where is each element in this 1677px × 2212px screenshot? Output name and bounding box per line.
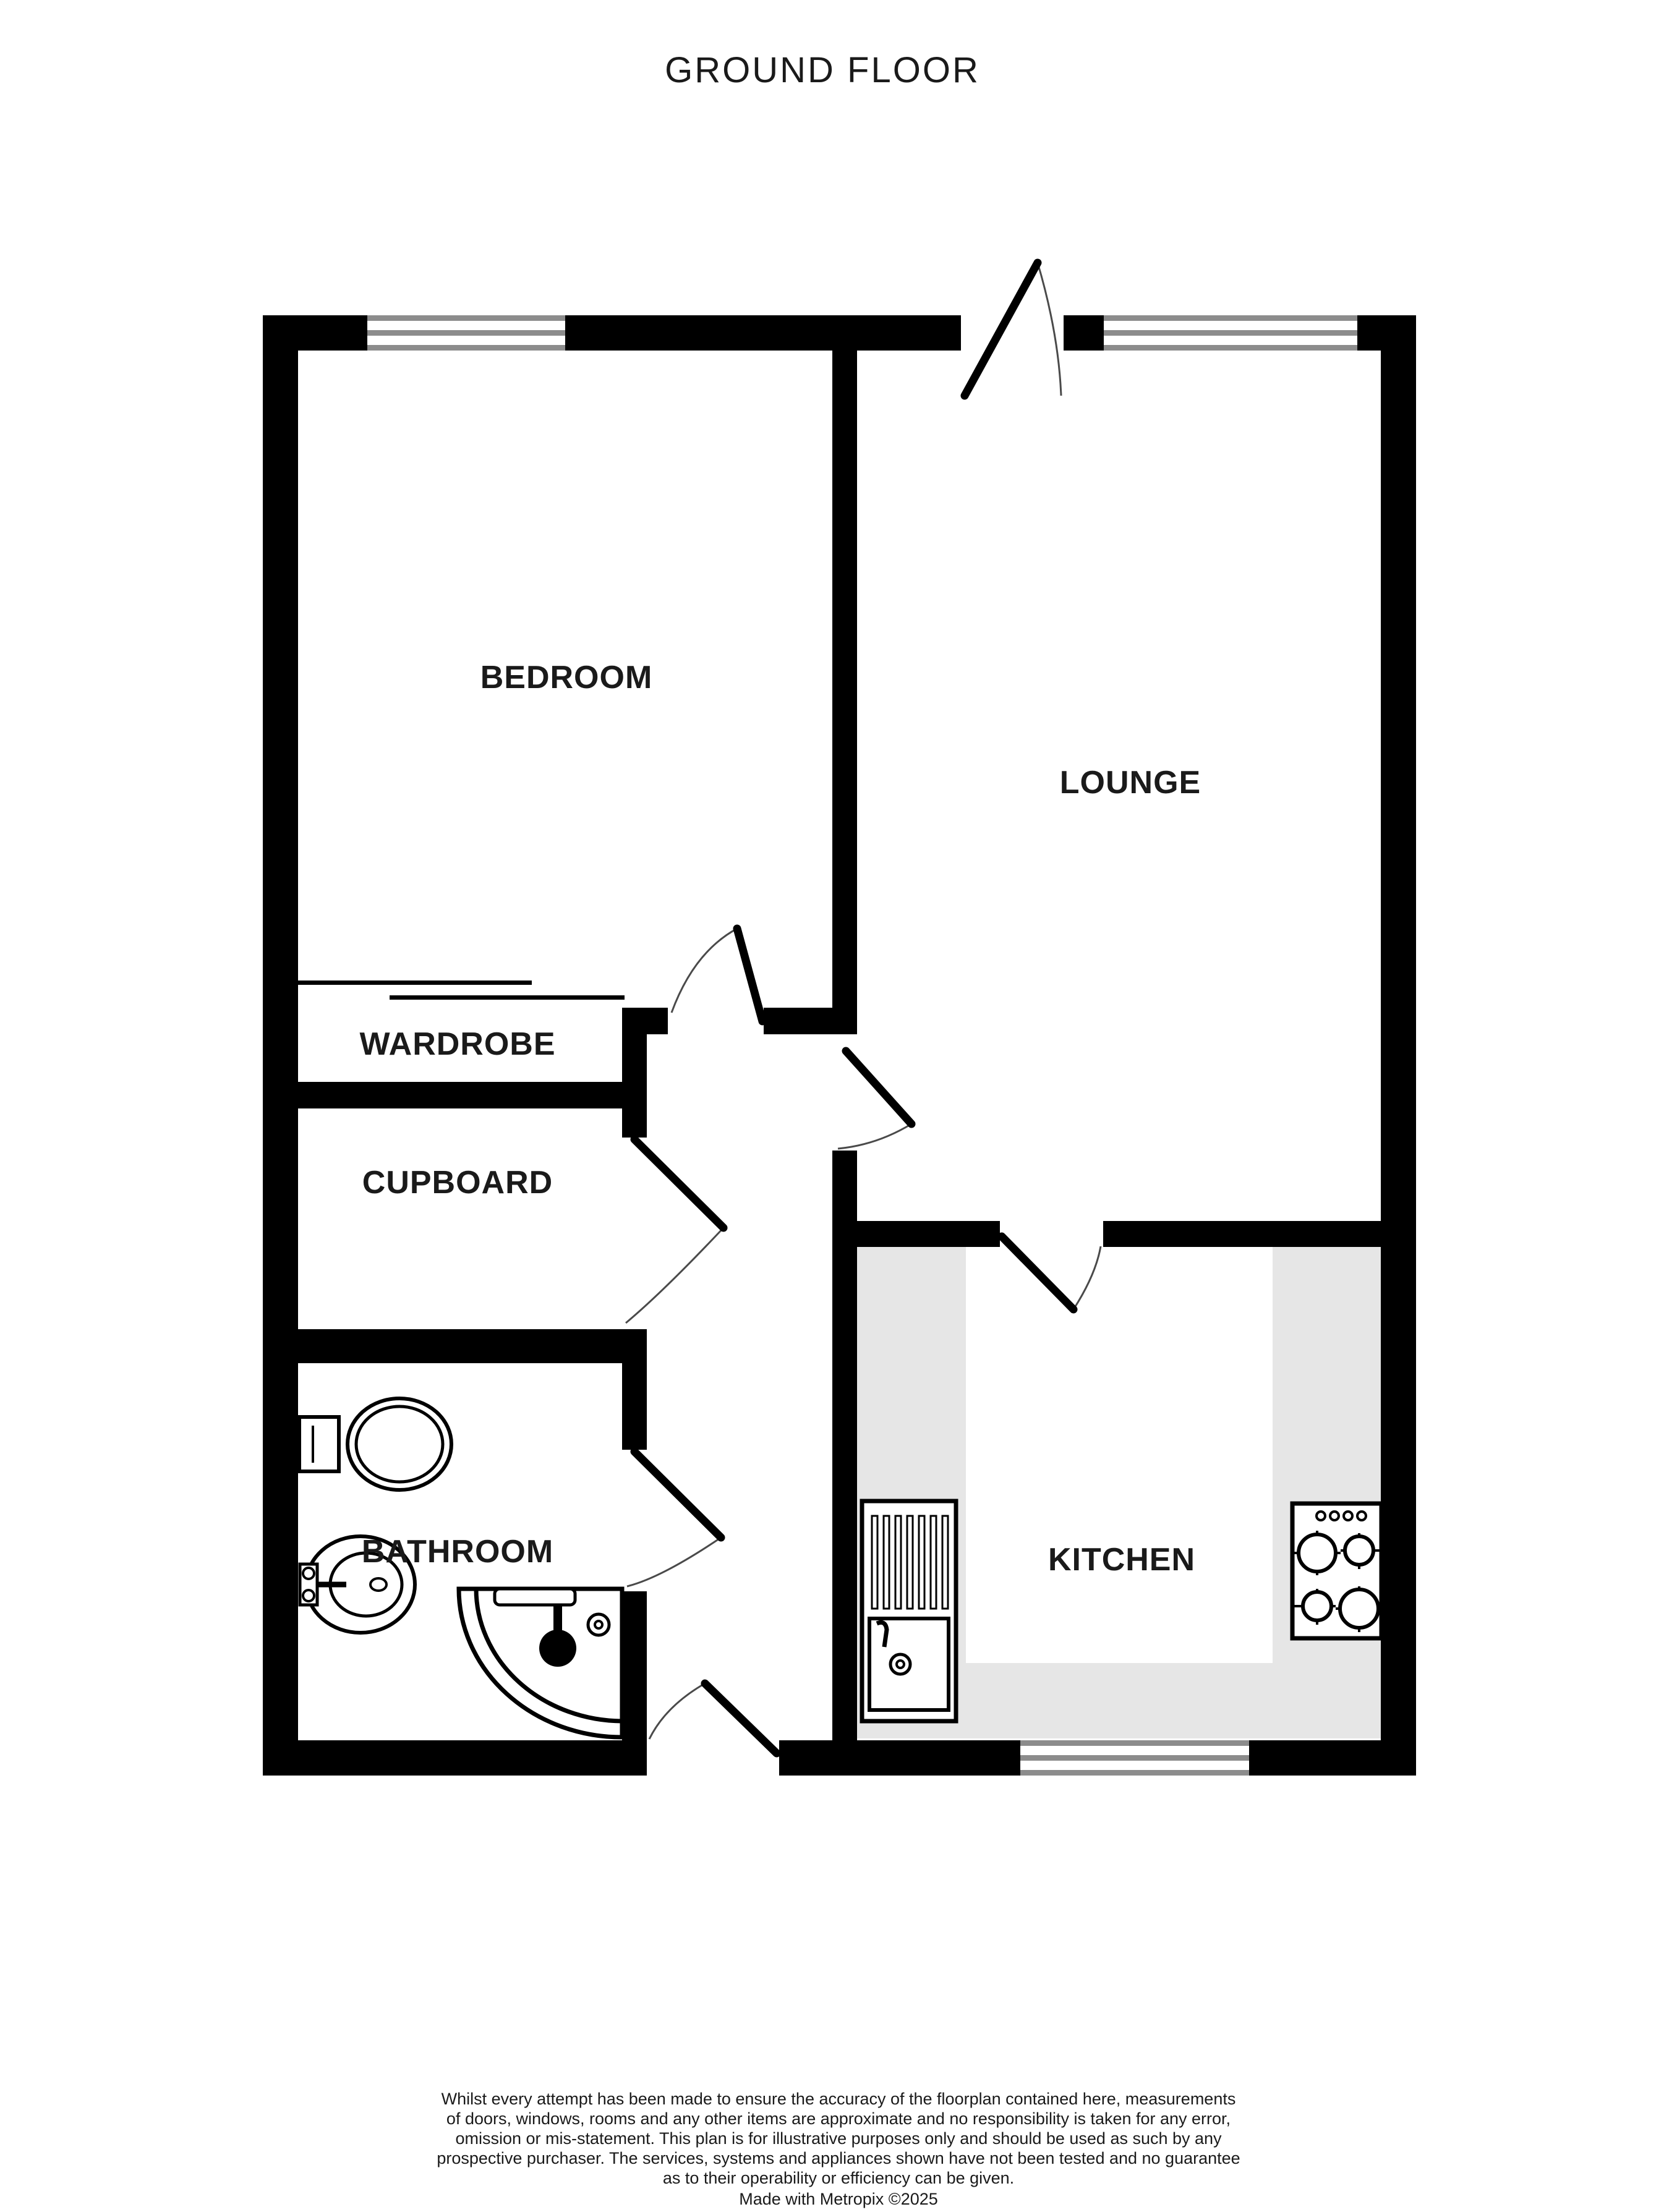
bathroom-door <box>634 1452 721 1538</box>
wall-wardrobe-cupboard <box>298 1082 647 1108</box>
kitchen-sink-icon <box>862 1501 956 1721</box>
cupboard-label: CUPBOARD <box>362 1165 553 1201</box>
bedroom-door <box>737 929 762 1021</box>
wall-cupboard-bathroom <box>298 1329 647 1363</box>
floorplan-page: { "title": "GROUND FLOOR", "rooms": { "b… <box>0 0 1677 2212</box>
wall-hall-top <box>764 1008 832 1034</box>
lounge-label: LOUNGE <box>1060 765 1201 801</box>
wall-bathroom-right-upper <box>622 1363 647 1450</box>
floorplan-canvas: GROUND FLOOR <box>0 0 1677 2212</box>
wall-left <box>263 315 298 1776</box>
credit-line: Made with Metropix ©2025 <box>739 2190 938 2208</box>
wall-bathroom-right-lower <box>622 1591 647 1740</box>
entrance-door-arc <box>1038 263 1061 396</box>
room-labels: BEDROOM LOUNGE WARDROBE CUPBOARD BATHROO… <box>359 660 1201 1578</box>
bedroom-window <box>367 315 565 351</box>
wall-wardrobe-right <box>622 1034 647 1082</box>
page-title: GROUND FLOOR <box>665 50 980 90</box>
front-hall-door <box>705 1683 777 1753</box>
entrance-door <box>965 263 1038 396</box>
lounge-window <box>1104 315 1357 351</box>
wall-hall-top-jamb <box>622 1008 668 1034</box>
disclaimer: Whilst every attempt has been made to en… <box>437 2090 1240 2208</box>
wardrobe-label: WARDROBE <box>359 1026 555 1062</box>
wall-bottom-3 <box>1249 1740 1416 1776</box>
wardrobe-rail-2 <box>390 995 625 1000</box>
disclaimer-line-3: omission or mis-statement. This plan is … <box>455 2129 1222 2148</box>
wall-divider-lower <box>832 1151 857 1740</box>
bathroom-door-arc <box>627 1538 721 1586</box>
disclaimer-line-5: as to their operability or efficiency ca… <box>663 2169 1014 2187</box>
wall-top-2 <box>565 315 961 351</box>
wall-lounge-kitchen-2 <box>1103 1221 1381 1247</box>
wall-bottom-2 <box>779 1740 1020 1776</box>
wall-bottom-1 <box>263 1740 647 1776</box>
wall-right <box>1381 315 1416 1776</box>
lounge-door-arc <box>838 1124 911 1149</box>
bathroom-label: BATHROOM <box>362 1534 553 1570</box>
wardrobe-rail-1 <box>298 981 532 985</box>
corner-shower-icon <box>459 1589 622 1737</box>
wall-divider-upper <box>832 351 857 1034</box>
wall-top-3 <box>1064 315 1104 351</box>
cupboard-door <box>634 1139 723 1228</box>
kitchen-door-arc <box>1073 1246 1101 1309</box>
bedroom-label: BEDROOM <box>480 660 653 696</box>
bedroom-door-arc <box>672 929 737 1013</box>
disclaimer-line-1: Whilst every attempt has been made to en… <box>442 2090 1236 2108</box>
cupboard-door-arc <box>626 1228 723 1323</box>
wall-cupboard-right <box>622 1108 647 1138</box>
kitchen-window <box>1020 1740 1249 1776</box>
disclaimer-line-4: prospective purchaser. The services, sys… <box>437 2149 1240 2167</box>
wall-lounge-kitchen-1 <box>857 1221 1000 1247</box>
lounge-door <box>846 1051 911 1124</box>
kitchen-label: KITCHEN <box>1048 1542 1195 1578</box>
kitchen-door <box>1002 1236 1073 1309</box>
front-hall-door-arc <box>649 1683 705 1739</box>
toilet-icon <box>299 1398 451 1490</box>
disclaimer-line-2: of doors, windows, rooms and any other i… <box>446 2109 1231 2128</box>
drainer-bars <box>872 1516 948 1609</box>
hob-icon <box>1292 1504 1381 1638</box>
